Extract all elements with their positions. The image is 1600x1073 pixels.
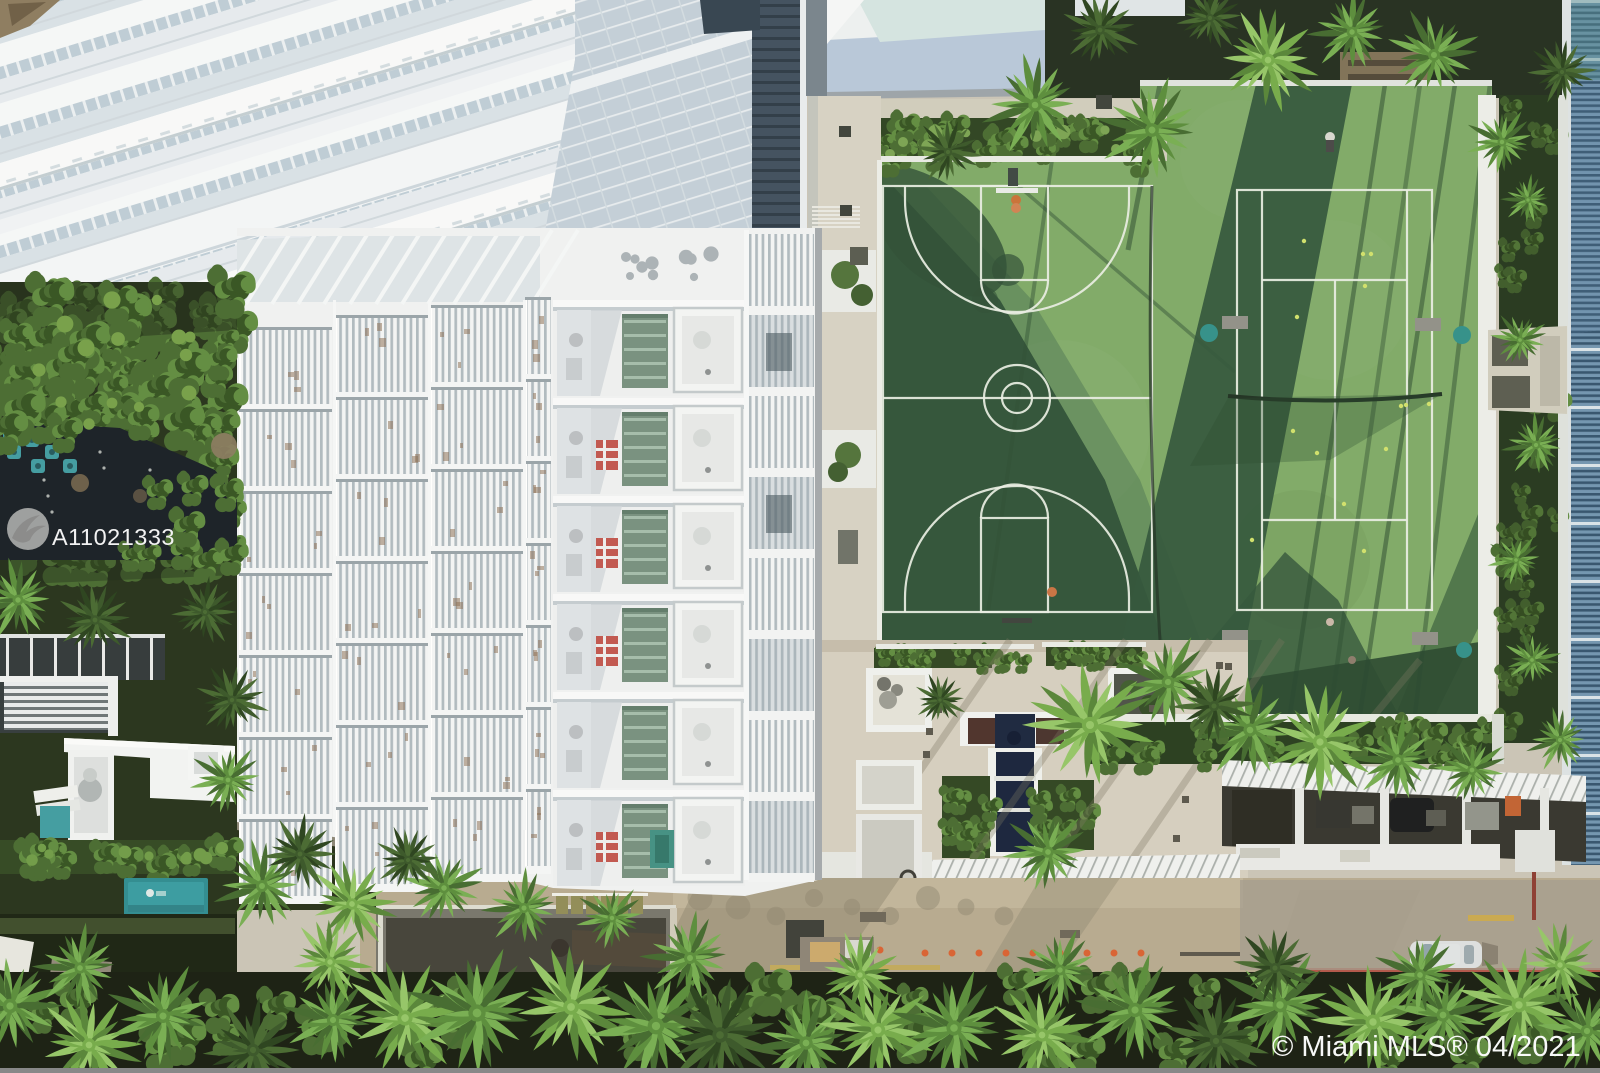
svg-text:A11021333: A11021333 (52, 524, 175, 550)
svg-text:© Miami MLS® 04/2021: © Miami MLS® 04/2021 (1272, 1031, 1581, 1063)
